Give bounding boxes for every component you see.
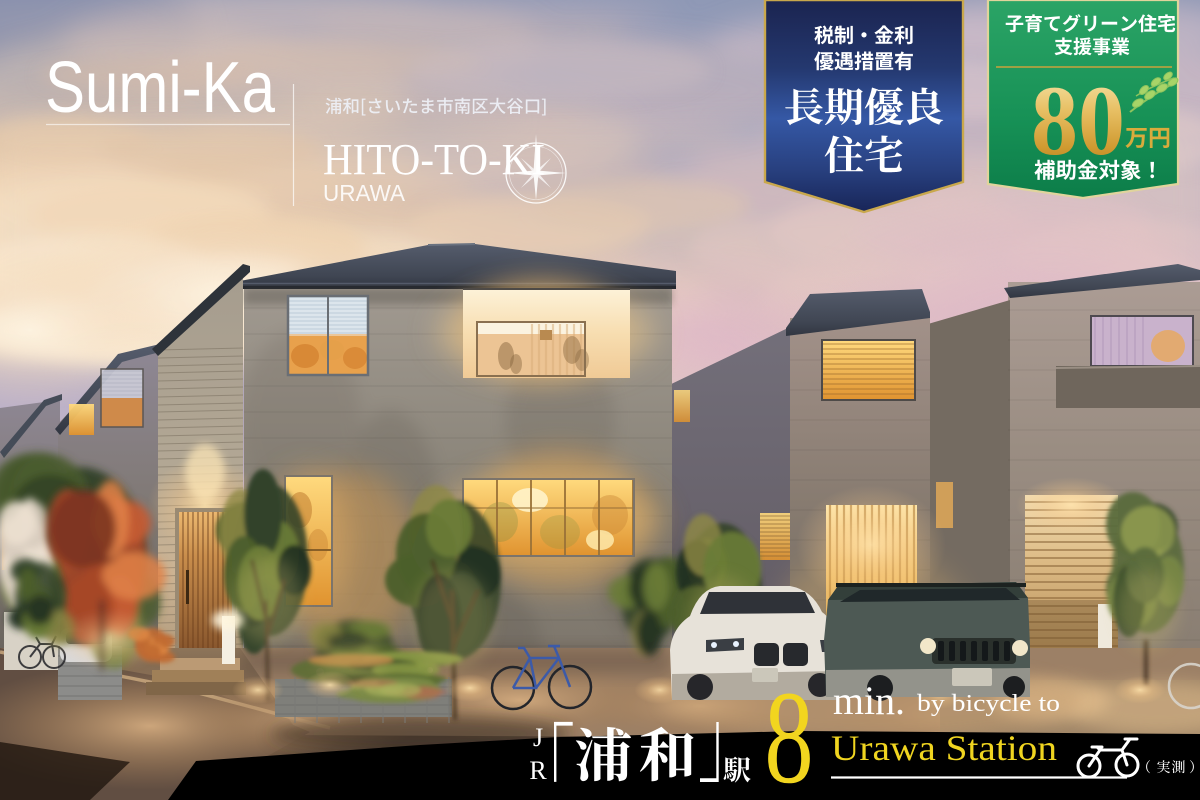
svg-text:HITO-TO-KI: HITO-TO-KI (323, 135, 545, 184)
svg-text:8: 8 (764, 665, 813, 800)
svg-text:J: J (533, 723, 543, 752)
svg-text:min.: min. (833, 678, 905, 723)
svg-text:Urawa Station: Urawa Station (831, 728, 1057, 768)
svg-text:by bicycle to: by bicycle to (917, 691, 1060, 717)
svg-text:URAWA: URAWA (323, 180, 406, 206)
svg-text:R: R (529, 756, 547, 785)
svg-text:80: 80 (1031, 65, 1125, 175)
svg-text:Sumi-Ka: Sumi-Ka (45, 48, 276, 128)
